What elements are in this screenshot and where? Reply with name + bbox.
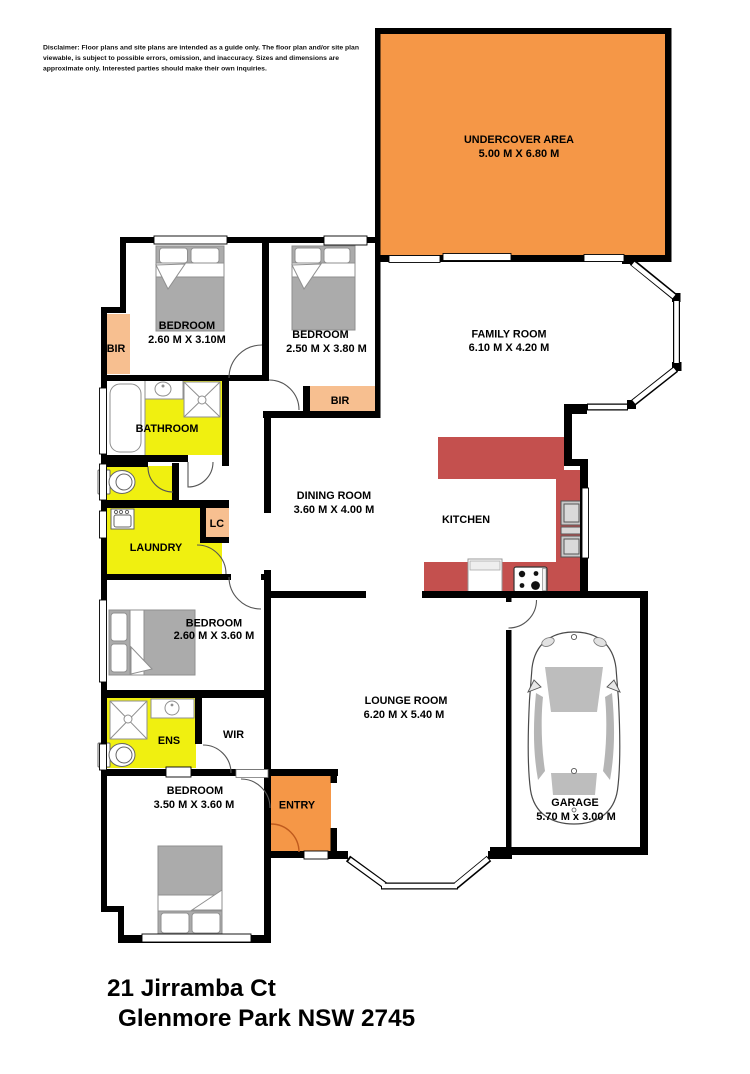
svg-text:BEDROOM: BEDROOM: [167, 785, 223, 797]
svg-text:viewable, is subject to possib: viewable, is subject to possible errors,…: [43, 55, 339, 62]
svg-text:KITCHEN: KITCHEN: [442, 514, 490, 526]
svg-text:ENTRY: ENTRY: [279, 800, 316, 812]
svg-text:BEDROOM: BEDROOM: [159, 320, 215, 332]
svg-text:DINING ROOM: DINING ROOM: [297, 490, 371, 502]
svg-text:21 Jirramba Ct: 21 Jirramba Ct: [107, 975, 276, 1002]
svg-text:BEDROOM: BEDROOM: [186, 618, 242, 630]
svg-text:Glenmore Park NSW 2745: Glenmore Park NSW 2745: [118, 1005, 415, 1032]
svg-text:approximate only. Interested p: approximate only. Interested parties sho…: [43, 66, 267, 73]
svg-text:BIR: BIR: [107, 343, 126, 355]
svg-text:BATHROOM: BATHROOM: [136, 423, 199, 435]
svg-text:LOUNGE ROOM: LOUNGE ROOM: [365, 695, 448, 707]
svg-text:LC: LC: [210, 518, 225, 530]
svg-text:BIR: BIR: [331, 395, 350, 407]
svg-text:ENS: ENS: [158, 735, 180, 747]
svg-text:BEDROOM: BEDROOM: [292, 329, 348, 341]
svg-text:2.60 M X 3.10M: 2.60 M X 3.10M: [148, 334, 226, 346]
svg-text:UNDERCOVER AREA: UNDERCOVER AREA: [464, 134, 574, 146]
svg-text:LAUNDRY: LAUNDRY: [130, 542, 183, 554]
svg-text:3.50 M X 3.60 M: 3.50 M X 3.60 M: [154, 799, 235, 811]
svg-text:6.10 M X 4.20 M: 6.10 M X 4.20 M: [469, 342, 550, 354]
svg-text:FAMILY ROOM: FAMILY ROOM: [472, 329, 547, 341]
svg-text:5.70 M x 3.00 M: 5.70 M x 3.00 M: [536, 811, 616, 823]
svg-text:5.00 M X 6.80 M: 5.00 M X 6.80 M: [479, 148, 560, 160]
svg-text:3.60 M X 4.00 M: 3.60 M X 4.00 M: [294, 504, 375, 516]
svg-text:6.20 M X 5.40 M: 6.20 M X 5.40 M: [364, 709, 445, 721]
svg-text:2.60 M X 3.60 M: 2.60 M X 3.60 M: [174, 630, 255, 642]
svg-text:GARAGE: GARAGE: [551, 797, 598, 809]
svg-text:WIR: WIR: [223, 729, 244, 741]
svg-text:2.50 M X 3.80 M: 2.50 M X 3.80 M: [286, 343, 367, 355]
svg-text:Disclaimer: Floor plans and si: Disclaimer: Floor plans and site plans a…: [43, 45, 359, 52]
